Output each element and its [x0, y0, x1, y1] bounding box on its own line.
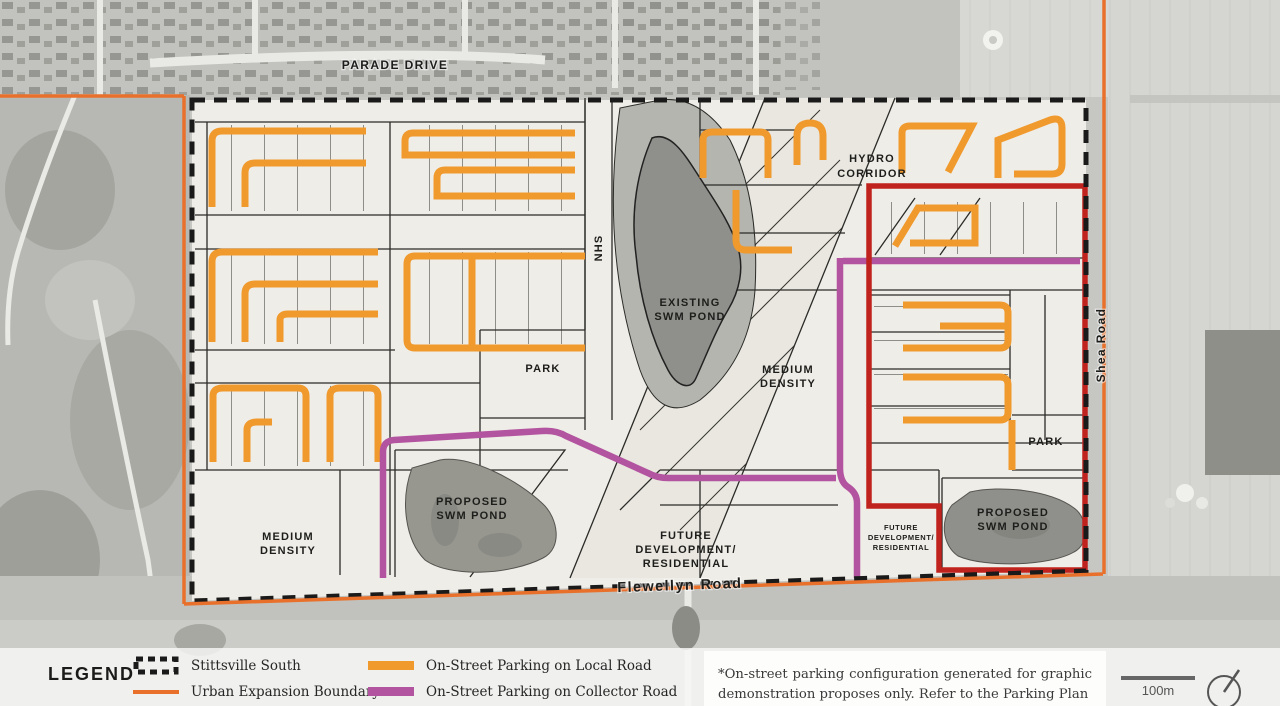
- future-development-center-label: FUTURE: [660, 530, 712, 542]
- svg-text:RESIDENTIAL: RESIDENTIAL: [643, 558, 730, 570]
- shea-road-label: Shea Road: [1094, 308, 1108, 383]
- orange-line-icon: [133, 690, 179, 694]
- svg-text:DEVELOPMENT/: DEVELOPMENT/: [635, 544, 736, 556]
- park-west-label: PARK: [525, 363, 560, 375]
- svg-text:CORRIDOR: CORRIDOR: [837, 168, 907, 180]
- legend-bar: LEGEND Stittsville South Urban Expansion…: [0, 648, 1280, 706]
- legend-title: LEGEND: [48, 664, 135, 685]
- hydro-corridor-label: HYDRO: [849, 153, 895, 165]
- future-development-east-label: FUTURE: [884, 523, 918, 532]
- legend-item-urban-expansion-boundary: Urban Expansion Boundary: [133, 682, 380, 701]
- svg-text:DENSITY: DENSITY: [760, 378, 816, 390]
- legend-item-stittsville-south: Stittsville South: [133, 656, 380, 675]
- medium-density-center-label: MEDIUM: [762, 364, 814, 376]
- parking-note: *On-street parking configuration generat…: [704, 651, 1106, 706]
- svg-text:SWM POND: SWM POND: [436, 510, 507, 522]
- parking-note-text: *On-street parking configuration generat…: [718, 665, 1092, 706]
- orange-bar-icon: [368, 661, 414, 670]
- legend-label: Urban Expansion Boundary: [191, 684, 380, 700]
- nhs-label: NHS: [593, 235, 605, 262]
- svg-text:DEVELOPMENT/: DEVELOPMENT/: [868, 533, 935, 542]
- legend-label: Stittsville South: [191, 658, 301, 674]
- proposed-swm-pond-west-label: PROPOSED: [436, 496, 508, 508]
- svg-text:SWM POND: SWM POND: [977, 521, 1048, 533]
- purple-bar-icon: [368, 687, 414, 696]
- legend-label: On-Street Parking on Collector Road: [426, 684, 677, 700]
- park-east-label: PARK: [1028, 436, 1063, 448]
- svg-text:RESIDENTIAL: RESIDENTIAL: [873, 543, 930, 552]
- scale-line: [1121, 676, 1195, 680]
- parade-drive-label: PARADE DRIVE: [342, 58, 449, 72]
- proposed-swm-pond-east-label: PROPOSED: [977, 507, 1049, 519]
- scale-label: 100m: [1121, 683, 1195, 698]
- legend-item-local-road-parking: On-Street Parking on Local Road: [368, 656, 677, 675]
- svg-text:DENSITY: DENSITY: [260, 545, 316, 557]
- medium-density-southwest-label: MEDIUM: [262, 531, 314, 543]
- site-plan-map: PARADE DRIVE Flewellyn Road Shea Road HY…: [0, 0, 1280, 706]
- legend-item-collector-road-parking: On-Street Parking on Collector Road: [368, 682, 677, 701]
- svg-text:SWM POND: SWM POND: [654, 311, 725, 323]
- map-canvas: PARADE DRIVE Flewellyn Road Shea Road HY…: [0, 0, 1280, 706]
- legend-label: On-Street Parking on Local Road: [426, 658, 652, 674]
- scale-bar: 100m: [1121, 676, 1195, 698]
- existing-swm-pond-label: EXISTING: [660, 297, 721, 309]
